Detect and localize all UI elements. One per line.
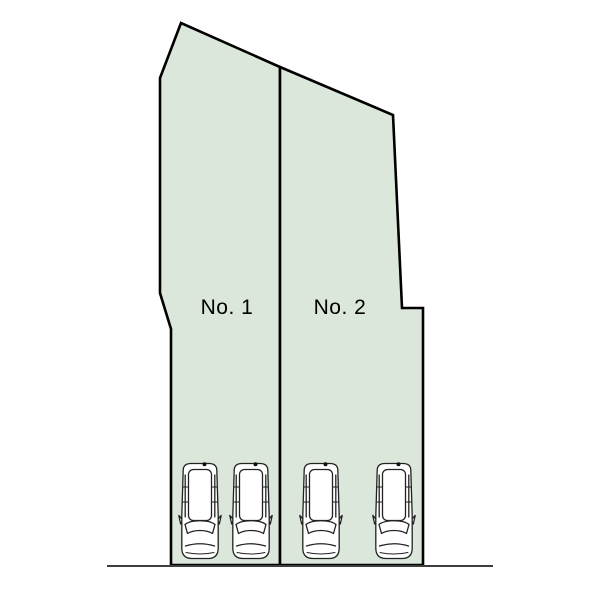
parking-layout-diagram: No. 1 No. 2 [0, 0, 600, 600]
layout-canvas: No. 1 No. 2 [0, 0, 600, 600]
car-icon [230, 462, 272, 558]
car-icon [373, 462, 415, 558]
plot-2-label: No. 2 [314, 296, 367, 319]
car-icon [300, 462, 342, 558]
car-icon [179, 462, 221, 558]
plot-1-label: No. 1 [201, 296, 254, 319]
